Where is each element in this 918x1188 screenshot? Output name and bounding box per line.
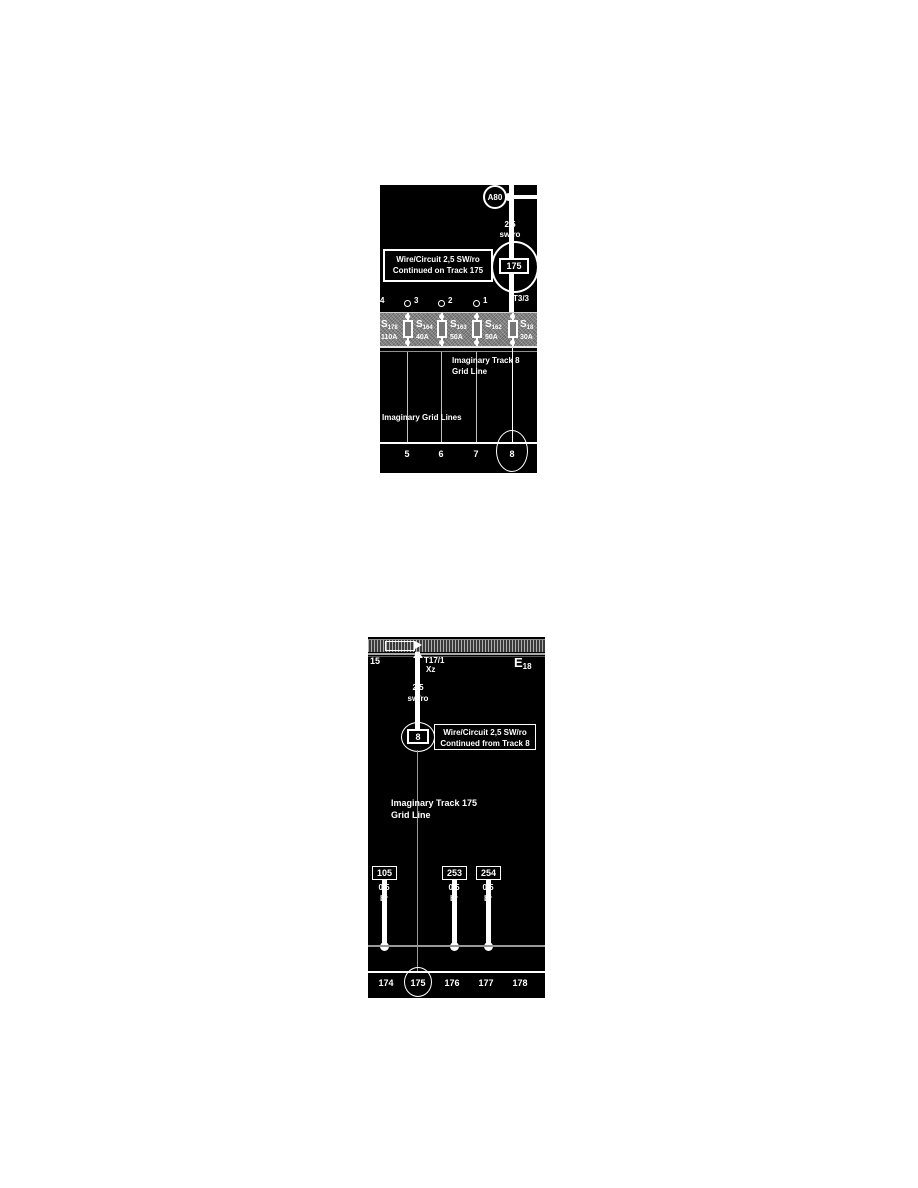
- wire-id-box: 254: [476, 866, 501, 880]
- fuse-label: S163 50A: [450, 318, 467, 343]
- wire-size-label: 2,5: [398, 683, 438, 692]
- track8-note: Imaginary Track 8 Grid Line: [452, 355, 520, 377]
- track-ref-box: 175: [499, 258, 529, 274]
- imaginary-track175-grid-line: [417, 750, 418, 972]
- stub-wire: [382, 880, 387, 948]
- fuse-label: S164 40A: [416, 318, 433, 343]
- diagram-panel-track175: 15 T17/1 Xz E18 2,5 sw/ro 8 Wire/Circuit…: [368, 637, 545, 998]
- track-ref-box: 8: [407, 729, 429, 744]
- imaginary-grid-line: [441, 352, 442, 442]
- bus-line: [368, 945, 545, 947]
- track-ref-number: 175: [506, 261, 521, 271]
- fuse-symbol: [507, 313, 519, 346]
- fuse-rating: 40A: [416, 333, 433, 343]
- terminal-point-icon: [438, 300, 445, 307]
- fuse-symbol: [402, 313, 414, 346]
- fuse-symbol: [471, 313, 483, 346]
- fuse-symbol: [436, 313, 448, 346]
- main-wire-vertical: [415, 652, 420, 732]
- component-label: E18: [514, 655, 532, 671]
- fuse-rating: 50A: [485, 333, 502, 343]
- terminal-point-icon: [473, 300, 480, 307]
- component-circle: A80: [483, 185, 507, 209]
- track-number: 178: [505, 978, 535, 988]
- pin-label-4: 4: [380, 296, 384, 305]
- diagram-panel-track8: A80 2,5 sw/ro 175 Wire/Circuit 2,5 SW/ro…: [380, 185, 537, 473]
- callout-line2: Continued from Track 8: [435, 738, 535, 749]
- track-number: 6: [431, 449, 451, 459]
- fuse-label: S178 110A: [381, 318, 398, 343]
- wire-color-label: sw/ro: [485, 230, 535, 239]
- fuse-rating: 110A: [381, 333, 398, 343]
- track-number: 177: [471, 978, 501, 988]
- stub-wire: [486, 880, 491, 948]
- track-baseline: [368, 971, 545, 973]
- connector-pin-label: Xz: [426, 665, 435, 674]
- callout-box: Wire/Circuit 2,5 SW/ro Continued from Tr…: [434, 724, 536, 750]
- fuse-strip: S178 110A S164 40A S163 50A S162 50A S18…: [380, 312, 537, 348]
- track175-highlight-circle: [404, 967, 432, 997]
- rail-arrow-icon: [415, 641, 422, 649]
- track175-note: Imaginary Track 175 Grid Line: [391, 797, 477, 821]
- branch-wire-horizontal: [513, 195, 537, 199]
- component-label: A80: [488, 193, 503, 202]
- callout-line1: Wire/Circuit 2,5 SW/ro: [435, 727, 535, 738]
- pin-label-3: 3: [414, 296, 418, 305]
- terminal-15-label: 15: [370, 656, 380, 666]
- track-ref-number: 8: [415, 732, 420, 742]
- wire-size-label: 2,5: [490, 220, 530, 229]
- callout-line1: Wire/Circuit 2,5 SW/ro: [385, 254, 491, 265]
- wire-id-box: 253: [442, 866, 467, 880]
- imaginary-grid-line: [407, 352, 408, 442]
- pin-label-1: 1: [483, 296, 487, 305]
- rail-label-box: [385, 641, 415, 651]
- track-number: 5: [397, 449, 417, 459]
- wire-color-label: sw/ro: [393, 694, 443, 703]
- track-number: 174: [371, 978, 401, 988]
- connector-label: T17/1: [424, 656, 444, 665]
- track-number: 176: [437, 978, 467, 988]
- track8-highlight-ellipse: [496, 430, 528, 472]
- strip-underline: [380, 351, 537, 352]
- fuse-label: S18 30A: [520, 318, 533, 343]
- stub-wire: [452, 880, 457, 948]
- callout-box: Wire/Circuit 2,5 SW/ro Continued on Trac…: [383, 249, 493, 282]
- fuse-label: S162 50A: [485, 318, 502, 343]
- terminal-point-icon: [404, 300, 411, 307]
- callout-line2: Continued on Track 175: [385, 265, 491, 276]
- wire-id-box: 105: [372, 866, 397, 880]
- pin-label-t33: T3/3: [513, 294, 529, 303]
- track-number: 7: [466, 449, 486, 459]
- pin-label-2: 2: [448, 296, 452, 305]
- fuse-rating: 50A: [450, 333, 467, 343]
- gridlines-note: Imaginary Grid Lines: [382, 412, 462, 423]
- fuse-rating: 30A: [520, 333, 533, 343]
